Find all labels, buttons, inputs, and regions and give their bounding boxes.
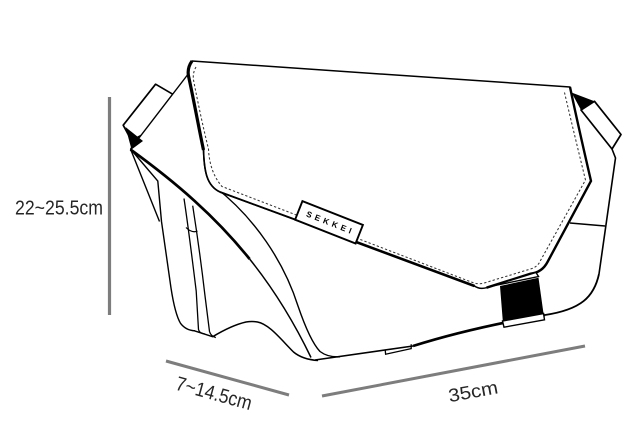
svg-text:22~25.5cm: 22~25.5cm xyxy=(15,198,103,220)
